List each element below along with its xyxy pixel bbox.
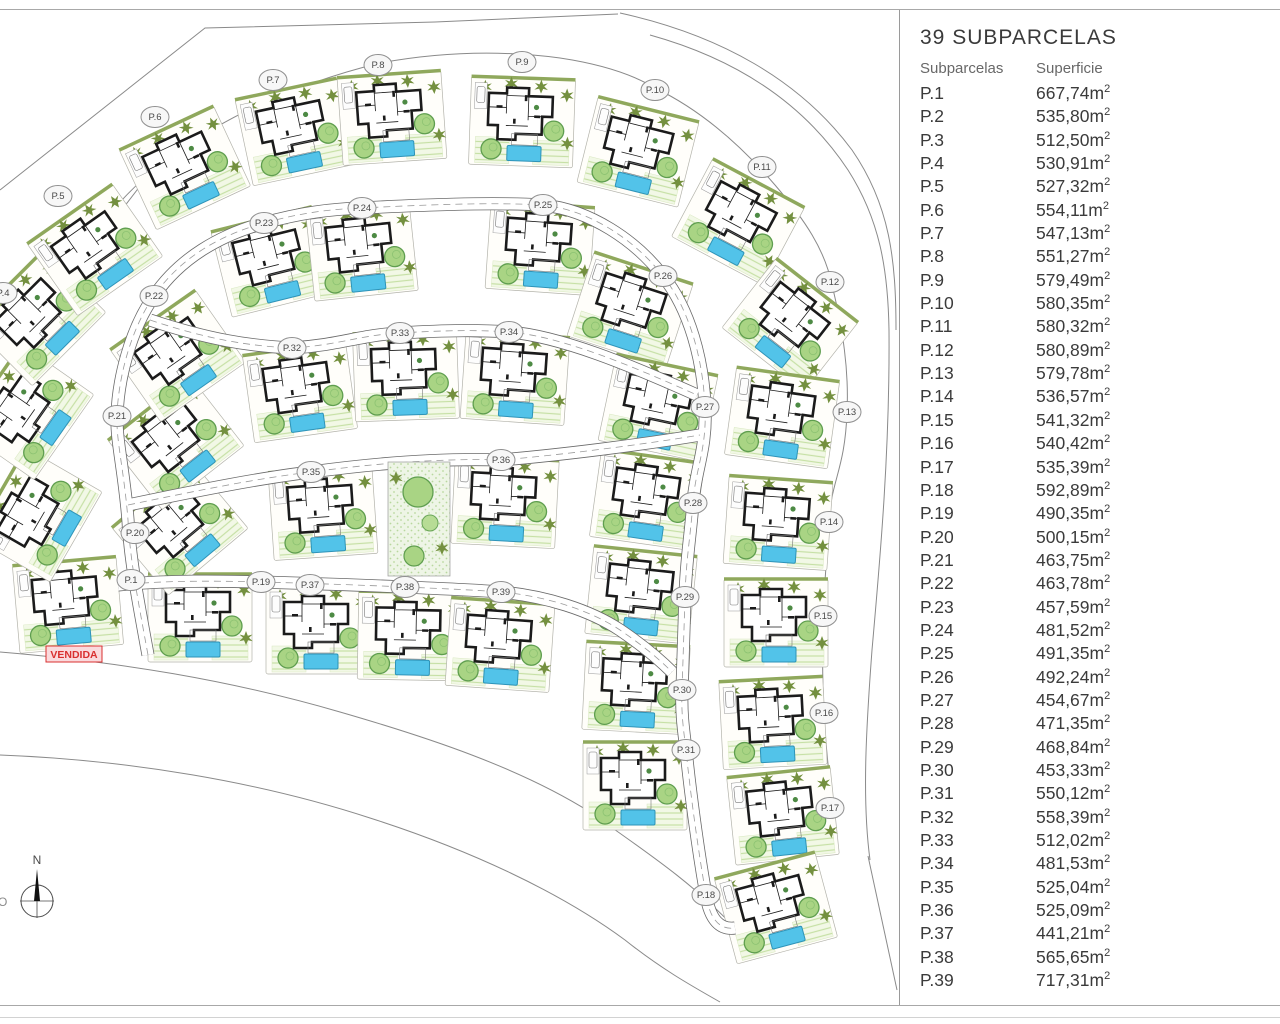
parcel-row: P.15541,32m2 — [920, 409, 1110, 432]
pool — [304, 654, 338, 669]
svg-text:P.32: P.32 — [283, 343, 301, 354]
tree-icon — [160, 636, 180, 656]
plot-marker-p26: P.26 — [649, 266, 677, 287]
pool — [186, 642, 220, 657]
plot-marker-p13: P.13 — [833, 402, 861, 423]
parcel-area: 527,32m2 — [1036, 176, 1110, 196]
parcel-id: P.6 — [920, 199, 1036, 222]
parcel-id: P.24 — [920, 619, 1036, 642]
plot-p6 — [119, 105, 252, 230]
pool — [523, 271, 558, 288]
svg-text:P.14: P.14 — [820, 517, 838, 528]
plot-p31 — [583, 741, 688, 830]
svg-text:P.30: P.30 — [673, 685, 691, 696]
parcel-row: P.34481,53m2 — [920, 852, 1110, 875]
parcel-area: 530,91m2 — [1036, 153, 1110, 173]
parcel-row: P.17535,39m2 — [920, 456, 1110, 479]
svg-text:P.27: P.27 — [696, 402, 714, 413]
plot-marker-p1: P.1 — [117, 570, 145, 591]
parcel-id: P.32 — [920, 806, 1036, 829]
parcel-area: 441,21m2 — [1036, 923, 1110, 943]
plot-p18 — [714, 851, 838, 964]
pool — [507, 145, 542, 161]
svg-text:P.23: P.23 — [255, 218, 273, 229]
parcel-row: P.1667,74m2 — [920, 82, 1110, 105]
plot-marker-p8: P.8 — [364, 55, 392, 76]
parcel-row: P.23457,59m2 — [920, 596, 1110, 619]
tree-icon — [735, 538, 756, 559]
tree-icon — [353, 137, 374, 158]
plot-p16 — [719, 675, 828, 769]
parcel-id: P.19 — [920, 502, 1036, 525]
parcel-row: P.24481,52m2 — [920, 619, 1110, 642]
parcel-row: P.6554,11m2 — [920, 199, 1110, 222]
plot-marker-p24: P.24 — [348, 198, 376, 219]
parcel-area: 558,39m2 — [1036, 807, 1110, 827]
plot-marker-p10: P.10 — [641, 80, 669, 101]
parcel-row: P.39717,31m2 — [920, 969, 1110, 992]
parcel-id: P.10 — [920, 292, 1036, 315]
plot-p10 — [577, 96, 700, 208]
plot-marker-p19: P.19 — [247, 572, 275, 593]
parcel-id: P.29 — [920, 736, 1036, 759]
parcel-row: P.21463,75m2 — [920, 549, 1110, 572]
parcel-area: 468,84m2 — [1036, 737, 1110, 757]
svg-text:P.34: P.34 — [500, 327, 518, 338]
parcel-area: 535,80m2 — [1036, 106, 1110, 126]
parcel-id: P.39 — [920, 969, 1036, 992]
parcel-row: P.30453,33m2 — [920, 759, 1110, 782]
parcel-id: P.25 — [920, 642, 1036, 665]
pool — [393, 399, 428, 415]
parcel-id: P.28 — [920, 712, 1036, 735]
parcel-row: P.9579,49m2 — [920, 269, 1110, 292]
parcel-id: P.36 — [920, 899, 1036, 922]
pool — [311, 536, 346, 553]
plot-p39 — [445, 596, 556, 692]
parcel-row: P.20500,15m2 — [920, 526, 1110, 549]
parcel-row: P.29468,84m2 — [920, 736, 1110, 759]
svg-text:P.33: P.33 — [391, 328, 409, 339]
plot-marker-p12: P.12 — [816, 272, 844, 293]
parcel-id: P.17 — [920, 456, 1036, 479]
tree-icon — [481, 139, 502, 160]
parcel-row: P.25491,35m2 — [920, 642, 1110, 665]
col-header-superficie: Superficie — [1036, 60, 1103, 77]
svg-text:P.7: P.7 — [266, 75, 279, 86]
parcel-area: 579,78m2 — [1036, 363, 1110, 383]
svg-text:P.31: P.31 — [677, 745, 695, 756]
parcel-row: P.11580,32m2 — [920, 315, 1110, 338]
parcel-id: P.30 — [920, 759, 1036, 782]
tree-icon — [497, 263, 518, 284]
parcel-area: 547,13m2 — [1036, 223, 1110, 243]
pool — [56, 627, 91, 645]
parcel-row: P.38565,65m2 — [920, 946, 1110, 969]
svg-text:P.12: P.12 — [821, 277, 839, 288]
svg-text:P.15: P.15 — [814, 611, 832, 622]
pool — [395, 660, 429, 676]
parcel-area: 541,32m2 — [1036, 410, 1110, 430]
svg-text:P.25: P.25 — [534, 200, 552, 211]
parcel-area: 512,50m2 — [1036, 130, 1110, 150]
plot-marker-p21: P.21 — [103, 406, 131, 427]
parcel-id: P.12 — [920, 339, 1036, 362]
tree-icon — [222, 616, 242, 636]
svg-text:P.26: P.26 — [654, 271, 672, 282]
plot-marker-p29: P.29 — [671, 587, 699, 608]
parcel-id: P.8 — [920, 245, 1036, 268]
parcel-row: P.28471,35m2 — [920, 712, 1110, 735]
parcel-area: 565,65m2 — [1036, 947, 1110, 967]
tree-icon — [595, 804, 615, 824]
pool — [620, 711, 655, 728]
tree-icon — [543, 121, 564, 142]
pool — [621, 810, 655, 825]
tree-icon — [736, 641, 756, 661]
parcel-row: P.35525,04m2 — [920, 876, 1110, 899]
pool — [772, 838, 807, 856]
parcel-id: P.18 — [920, 479, 1036, 502]
svg-text:P.35: P.35 — [302, 467, 320, 478]
svg-text:P.20: P.20 — [126, 528, 144, 539]
svg-text:P.1: P.1 — [124, 575, 137, 586]
parcel-row: P.5527,32m2 — [920, 175, 1110, 198]
pool — [380, 141, 415, 158]
plot-marker-p35: P.35 — [297, 462, 325, 483]
parcel-area: 580,32m2 — [1036, 316, 1110, 336]
svg-text:P.18: P.18 — [697, 890, 715, 901]
parcel-id: P.11 — [920, 315, 1036, 338]
tree-icon — [345, 508, 366, 529]
plot-p13 — [724, 366, 840, 469]
tree-icon — [536, 378, 557, 399]
svg-text:P.4: P.4 — [0, 288, 10, 299]
svg-text:P.28: P.28 — [684, 498, 702, 509]
parcel-row: P.12580,89m2 — [920, 339, 1110, 362]
parcel-id: P.15 — [920, 409, 1036, 432]
plot-marker-p37: P.37 — [296, 575, 324, 596]
plot-marker-p27: P.27 — [691, 397, 719, 418]
parcel-area: 453,33m2 — [1036, 760, 1110, 780]
parcel-id: P.1 — [920, 82, 1036, 105]
parcel-area: 463,78m2 — [1036, 573, 1110, 593]
central-park — [388, 462, 450, 576]
parcel-id: P.33 — [920, 829, 1036, 852]
parcel-area: 481,53m2 — [1036, 853, 1110, 873]
svg-text:P.10: P.10 — [646, 85, 664, 96]
tree-icon — [278, 648, 298, 668]
parcel-id: P.37 — [920, 922, 1036, 945]
parcel-id: P.13 — [920, 362, 1036, 385]
parcel-row: P.10580,35m2 — [920, 292, 1110, 315]
parcel-id: P.4 — [920, 152, 1036, 175]
parcel-row: P.8551,27m2 — [920, 245, 1110, 268]
parcel-id: P.22 — [920, 572, 1036, 595]
plot-marker-p22: P.22 — [140, 286, 168, 307]
vendida-label: VENDIDA — [46, 646, 102, 662]
parcel-area: 481,52m2 — [1036, 620, 1110, 640]
svg-text:VENDIDA: VENDIDA — [50, 649, 98, 661]
pool — [489, 525, 524, 542]
tree-icon — [526, 501, 547, 522]
parcel-row: P.31550,12m2 — [920, 782, 1110, 805]
parcel-row: P.7547,13m2 — [920, 222, 1110, 245]
pool — [351, 274, 386, 292]
plot-p7 — [235, 77, 356, 186]
parcel-id: P.35 — [920, 876, 1036, 899]
parcel-row: P.2535,80m2 — [920, 105, 1110, 128]
parcel-id: P.9 — [920, 269, 1036, 292]
parcel-id: P.7 — [920, 222, 1036, 245]
parcel-area: 579,49m2 — [1036, 270, 1110, 290]
parcel-id: P.3 — [920, 129, 1036, 152]
parcel-row: P.36525,09m2 — [920, 899, 1110, 922]
plot-marker-p6: P.6 — [141, 107, 169, 128]
site-plan-map: P.1P.4P.5P.6P.7P.8P.9P.10P.11P.12P.13P.1… — [0, 0, 899, 1024]
parcel-area: 525,09m2 — [1036, 900, 1110, 920]
parcel-area: 592,89m2 — [1036, 480, 1110, 500]
plot-marker-p20: P.20 — [121, 523, 149, 544]
col-header-subparcelas: Subparcelas — [920, 60, 1003, 77]
site-plan-page: { "panel": { "title": "39 SUBPARCELAS", … — [0, 0, 1280, 1024]
svg-text:P.8: P.8 — [371, 60, 384, 71]
parcel-area: 540,42m2 — [1036, 433, 1110, 453]
parcel-area: 551,27m2 — [1036, 246, 1110, 266]
plot-marker-p33: P.33 — [386, 323, 414, 344]
tree-icon — [340, 628, 360, 648]
plot-marker-p14: P.14 — [815, 512, 843, 533]
parcel-row: P.27454,67m2 — [920, 689, 1110, 712]
svg-text:P.29: P.29 — [676, 592, 694, 603]
parcel-area: 512,02m2 — [1036, 830, 1110, 850]
parcel-area: 463,75m2 — [1036, 550, 1110, 570]
plot-marker-p39: P.39 — [487, 582, 515, 603]
parcel-area: 500,15m2 — [1036, 527, 1110, 547]
tree-icon — [463, 518, 484, 539]
parcel-row: P.3512,50m2 — [920, 129, 1110, 152]
tree-icon — [795, 719, 816, 740]
svg-text:P.24: P.24 — [353, 203, 371, 214]
parcel-area: 580,35m2 — [1036, 293, 1110, 313]
parcels-table: P.1667,74m2P.2535,80m2P.3512,50m2P.4530,… — [920, 82, 1110, 992]
pool — [762, 647, 796, 662]
north-label: N — [33, 853, 42, 867]
tree-icon — [414, 113, 435, 134]
tree-icon — [472, 393, 493, 414]
plot-marker-p18: P.18 — [692, 885, 720, 906]
panel-title: 39 SUBPARCELAS — [920, 26, 1117, 50]
parcel-area: 525,04m2 — [1036, 877, 1110, 897]
parcel-row: P.19490,35m2 — [920, 502, 1110, 525]
svg-text:P.22: P.22 — [145, 291, 163, 302]
plot-marker-p30: P.30 — [668, 680, 696, 701]
svg-text:P.13: P.13 — [838, 407, 856, 418]
svg-text:P.36: P.36 — [492, 455, 510, 466]
pool — [761, 546, 796, 563]
pool — [760, 746, 795, 763]
plot-p8 — [337, 69, 448, 165]
parcel-area: 667,74m2 — [1036, 83, 1110, 103]
tree-icon — [657, 784, 677, 804]
parcel-area: 550,12m2 — [1036, 783, 1110, 803]
svg-text:P.5: P.5 — [51, 191, 64, 202]
tree-icon — [457, 660, 478, 681]
svg-text:P.38: P.38 — [396, 582, 414, 593]
svg-text:P.6: P.6 — [148, 112, 161, 123]
svg-text:P.9: P.9 — [515, 57, 528, 68]
svg-text:P.39: P.39 — [492, 587, 510, 598]
parcel-id: P.38 — [920, 946, 1036, 969]
parcel-row: P.14536,57m2 — [920, 385, 1110, 408]
plot-marker-p7: P.7 — [259, 70, 287, 91]
tree-icon — [561, 248, 582, 269]
pool — [498, 401, 533, 418]
parcel-id: P.26 — [920, 666, 1036, 689]
parcel-row: P.26492,24m2 — [920, 666, 1110, 689]
plot-marker-p11: P.11 — [748, 157, 776, 178]
plot-p9 — [468, 75, 576, 168]
plot-marker-p32: P.32 — [278, 338, 306, 359]
west-label: O — [0, 895, 7, 909]
tree-icon — [521, 645, 542, 666]
tree-icon — [428, 373, 449, 394]
parcel-area: 535,39m2 — [1036, 457, 1110, 477]
parcel-row: P.16540,42m2 — [920, 432, 1110, 455]
plot-marker-p36: P.36 — [487, 450, 515, 471]
parcel-area: 457,59m2 — [1036, 597, 1110, 617]
parcel-area: 580,89m2 — [1036, 340, 1110, 360]
parcel-area: 492,24m2 — [1036, 667, 1110, 687]
tree-icon — [369, 653, 389, 673]
plot-marker-p15: P.15 — [809, 606, 837, 627]
parcel-area: 490,35m2 — [1036, 503, 1110, 523]
parcel-row: P.13579,78m2 — [920, 362, 1110, 385]
parcel-id: P.14 — [920, 385, 1036, 408]
parcel-id: P.31 — [920, 782, 1036, 805]
parcel-area: 491,35m2 — [1036, 643, 1110, 663]
parcel-id: P.23 — [920, 596, 1036, 619]
tree-icon — [284, 532, 305, 553]
table-header: Subparcelas Superficie — [920, 60, 1003, 77]
parcel-area: 471,35m2 — [1036, 713, 1110, 733]
parcel-id: P.16 — [920, 432, 1036, 455]
parcel-row: P.4530,91m2 — [920, 152, 1110, 175]
parcel-row: P.37441,21m2 — [920, 922, 1110, 945]
parcel-id: P.21 — [920, 549, 1036, 572]
parcel-id: P.34 — [920, 852, 1036, 875]
plot-marker-p16: P.16 — [810, 703, 838, 724]
parcel-area: 454,67m2 — [1036, 690, 1110, 710]
north-compass: NO — [0, 853, 54, 918]
parcel-area: 554,11m2 — [1036, 200, 1109, 220]
parcel-id: P.5 — [920, 175, 1036, 198]
plot-p37 — [266, 585, 371, 674]
pool — [483, 668, 518, 685]
svg-text:P.21: P.21 — [108, 411, 126, 422]
svg-text:P.37: P.37 — [301, 580, 319, 591]
parcel-row: P.22463,78m2 — [920, 572, 1110, 595]
svg-text:P.11: P.11 — [753, 162, 771, 173]
parcel-area: 717,31m2 — [1036, 970, 1110, 990]
svg-text:P.16: P.16 — [815, 708, 833, 719]
plot-marker-p31: P.31 — [672, 740, 700, 761]
plot-marker-p9: P.9 — [508, 52, 536, 73]
plot-marker-p23: P.23 — [250, 213, 278, 234]
parcel-row: P.33512,02m2 — [920, 829, 1110, 852]
plot-marker-p38: P.38 — [391, 577, 419, 598]
plot-marker-p34: P.34 — [495, 322, 523, 343]
parcel-row: P.32558,39m2 — [920, 806, 1110, 829]
parcel-area: 536,57m2 — [1036, 386, 1110, 406]
tree-icon — [734, 742, 755, 763]
parcels-panel: 39 SUBPARCELAS Subparcelas Superficie P.… — [899, 10, 1280, 1005]
svg-text:P.19: P.19 — [252, 577, 270, 588]
parcel-id: P.27 — [920, 689, 1036, 712]
plot-marker-p25: P.25 — [529, 195, 557, 216]
plot-marker-p28: P.28 — [679, 493, 707, 514]
parcel-id: P.2 — [920, 105, 1036, 128]
svg-text:P.17: P.17 — [821, 803, 839, 814]
plot-marker-p17: P.17 — [816, 798, 844, 819]
plot-marker-p5: P.5 — [44, 186, 72, 207]
tree-icon — [594, 704, 615, 725]
parcel-id: P.20 — [920, 526, 1036, 549]
tree-icon — [367, 395, 388, 416]
parcel-row: P.18592,89m2 — [920, 479, 1110, 502]
